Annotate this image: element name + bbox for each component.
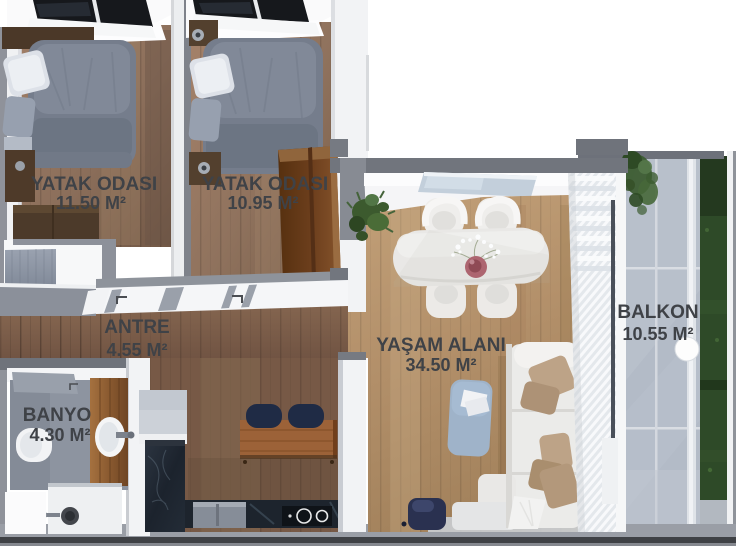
svg-text:34.50 M²: 34.50 M²: [405, 355, 476, 375]
svg-text:ANTRE: ANTRE: [104, 317, 169, 338]
svg-text:10.55 M²: 10.55 M²: [622, 324, 693, 344]
svg-text:BANYO: BANYO: [23, 405, 92, 426]
svg-text:10.95 M²: 10.95 M²: [227, 193, 298, 213]
svg-text:11.50 M²: 11.50 M²: [56, 193, 126, 213]
svg-text:YATAK ODASI: YATAK ODASI: [202, 174, 328, 195]
svg-text:YAŞAM ALANI: YAŞAM ALANI: [376, 335, 506, 356]
svg-text:YATAK ODASI: YATAK ODASI: [31, 174, 157, 195]
svg-text:4.30 M²: 4.30 M²: [29, 425, 90, 445]
svg-text:4.55 M²: 4.55 M²: [106, 340, 167, 360]
svg-text:BALKON: BALKON: [617, 302, 698, 323]
